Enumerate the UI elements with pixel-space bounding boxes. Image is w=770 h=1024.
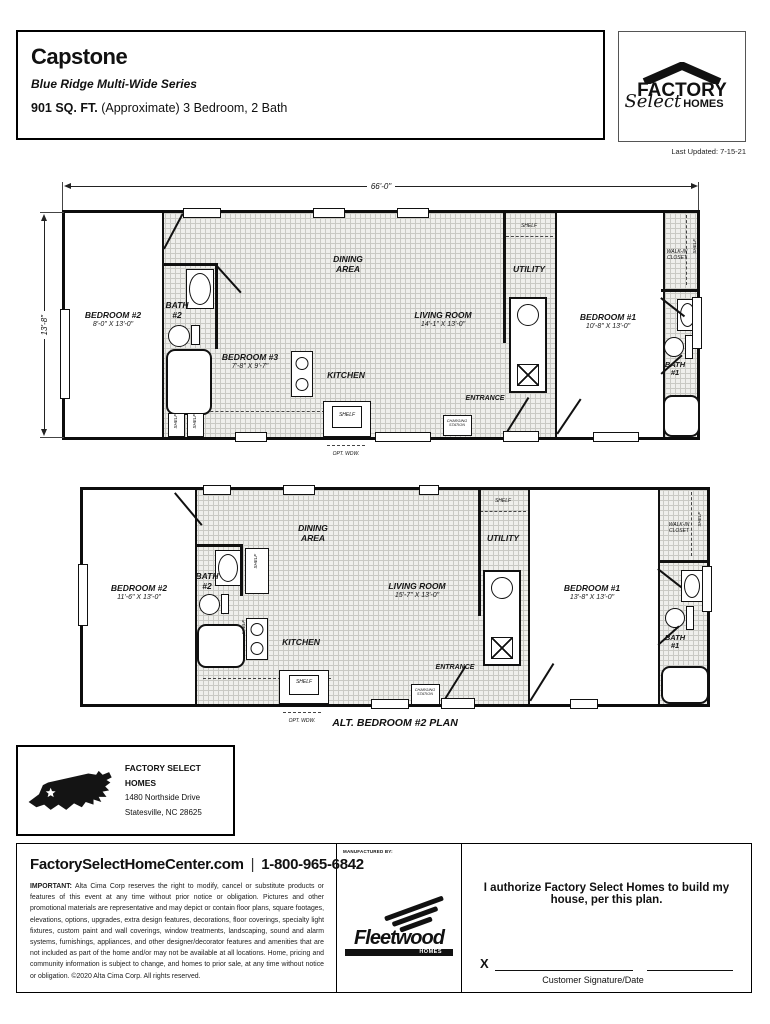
window (397, 208, 429, 218)
window (702, 566, 712, 612)
stove (246, 618, 268, 660)
bath1-label: BATH #1 (661, 361, 689, 378)
bathtub (663, 395, 700, 437)
shelf-label-vertical: SHELF (173, 414, 178, 429)
window (419, 485, 439, 495)
shelf-label-vertical: SHELF (697, 512, 702, 527)
sqft-value: 901 SQ. FT. (31, 101, 98, 115)
last-updated: Last Updated: 7-15-21 (520, 147, 746, 156)
utility-label: UTILITY (487, 534, 519, 544)
contact-column: FactorySelectHomeCenter.com|1-800-965-68… (17, 844, 337, 992)
window (593, 432, 639, 442)
living-label: LIVING ROOM 14'-1" X 13'-0" (414, 311, 471, 328)
signature-column: I authorize Factory Select Homes to buil… (462, 844, 751, 992)
dim-extension (62, 182, 63, 210)
living-label: LIVING ROOM 15'-7" X 13'-0" (388, 582, 445, 599)
door-swing (658, 568, 683, 588)
door-swing (504, 397, 529, 435)
kitchen-label: KITCHEN (327, 371, 365, 381)
walkin-label: WALK-IN CLOSET (662, 522, 696, 534)
shelf-label: SHELF (339, 412, 355, 418)
arrow-up-icon (41, 214, 47, 221)
kitchen-island: SHELF (279, 670, 329, 704)
opt-window-label: OPT. WDW. (289, 718, 316, 724)
page-title: Capstone (31, 44, 603, 70)
opt-window-label: OPT. WDW. (333, 451, 360, 457)
washer-dryer (483, 570, 521, 666)
charging-station: CHARGING STATION (443, 415, 472, 436)
walkin-label: WALK-IN CLOSET (660, 249, 694, 261)
bedroom3-label: BEDROOM #3 7'-8" X 9'-7" (222, 353, 278, 370)
washer (517, 304, 539, 326)
bedroom2-label: BEDROOM #2 8'-0" X 13'-0" (85, 311, 141, 328)
entrance-label: ENTRANCE (436, 664, 475, 672)
dining-label: DINING AREA (326, 255, 370, 274)
toilet-tank (191, 325, 200, 345)
manufacturer-column: MANUFACTURED BY: Fleetwood HOMES (337, 844, 462, 992)
bath2-label: BATH #2 (161, 301, 193, 320)
fleetwood-bar: HOMES (345, 949, 453, 956)
wall (661, 289, 697, 292)
bedroom1-label: BEDROOM #1 10'-8" X 13'-0" (580, 313, 636, 330)
toilet (168, 325, 190, 347)
opt-window-dash (283, 712, 321, 713)
manufactured-by-label: MANUFACTURED BY: (343, 849, 455, 854)
stove (291, 351, 313, 397)
door-swing (164, 213, 184, 249)
toilet-tank (686, 606, 694, 630)
window (371, 699, 409, 709)
logo-homes-text: HOMES (683, 98, 723, 110)
arrow-left-icon (64, 183, 71, 189)
shelf-label-vertical: SHELF (253, 554, 258, 569)
entrance-opening (503, 431, 539, 442)
floor-plan-main: BEDROOM #2 8'-0" X 13'-0" BATH #2 BEDROO… (62, 210, 700, 440)
swoosh-icon (345, 904, 453, 930)
shelf-label: SHELF (296, 679, 312, 685)
wall (503, 213, 506, 343)
alt-plan-caption: ALT. BEDROOM #2 PLAN (80, 717, 710, 729)
disclaimer-text: Alta Cima Corp reserves the right to mod… (30, 883, 324, 980)
dealer-address2: Statesville, NC 28625 (125, 806, 233, 820)
dim-extension (698, 182, 699, 210)
wall (215, 263, 218, 349)
arrow-down-icon (41, 429, 47, 436)
dealer-info: FACTORY SELECT HOMES 1480 Northside Driv… (125, 761, 233, 820)
bath1-label: BATH #1 (661, 634, 689, 651)
logo-select-text: Select (624, 93, 681, 111)
width-dim-label: 66'-0" (367, 182, 395, 191)
wall (658, 560, 707, 563)
x-label: X (480, 956, 489, 971)
bath2-label: BATH #2 (191, 572, 223, 591)
floor-plan-alt: BEDROOM #2 11'-6" X 13'-0" BATH #2 DININ… (80, 487, 710, 707)
kitchen-label: KITCHEN (282, 638, 320, 648)
arrow-right-icon (691, 183, 698, 189)
toilet (665, 608, 685, 628)
shelf-label-vertical: SHELF (241, 620, 246, 635)
bedroom1-label: BEDROOM #1 13'-8" X 13'-0" (564, 584, 620, 601)
charging-station: CHARGING STATION (411, 684, 440, 705)
dim-extension (40, 212, 64, 213)
dealer-address1: 1480 Northside Drive (125, 791, 233, 805)
window (375, 432, 431, 442)
toilet-tank (221, 594, 229, 614)
series-subtitle: Blue Ridge Multi-Wide Series (31, 77, 603, 91)
bathtub (661, 666, 709, 704)
bathtub (197, 624, 245, 668)
dealer-name: FACTORY SELECT HOMES (125, 761, 233, 792)
factory-select-logo: FACTORY Select HOMES (618, 31, 746, 142)
shelf-label-vertical: SHELF (192, 414, 197, 429)
important-label: IMPORTANT: (30, 883, 72, 890)
door-swing (216, 265, 241, 293)
dryer (517, 364, 539, 386)
entrance-opening (441, 698, 475, 709)
signature-row: X (480, 956, 733, 971)
height-dim-label: 13'-8" (40, 311, 49, 339)
window (78, 564, 88, 626)
wall (478, 490, 481, 616)
utility-label: UTILITY (513, 265, 545, 275)
footer-strip: FactorySelectHomeCenter.com|1-800-965-68… (16, 843, 752, 993)
fleetwood-logo: Fleetwood HOMES (345, 904, 453, 956)
wall (195, 544, 243, 547)
wall (162, 263, 218, 266)
window (235, 432, 267, 442)
door-opening (183, 208, 221, 218)
dining-label: DINING AREA (291, 524, 335, 543)
dim-extension (40, 437, 64, 438)
date-line (647, 958, 733, 971)
window (570, 699, 598, 709)
shelf-dash (506, 236, 553, 237)
website-text: FactorySelectHomeCenter.com (30, 856, 244, 873)
washer (491, 577, 513, 599)
logo-row: Select HOMES (624, 93, 723, 111)
window (203, 485, 231, 495)
shelf-label-vertical: SHELF (692, 239, 697, 254)
fleetwood-homes-text: HOMES (419, 949, 442, 955)
authorization-text: I authorize Factory Select Homes to buil… (480, 882, 733, 906)
bedroom2-label: BEDROOM #2 11'-6" X 13'-0" (111, 584, 167, 601)
sqft-line: 901 SQ. FT. (Approximate) 3 Bedroom, 2 B… (31, 101, 603, 115)
disclaimer: IMPORTANT: Alta Cima Corp reserves the r… (30, 881, 324, 982)
floor-plan-sheet: Capstone Blue Ridge Multi-Wide Series 90… (0, 0, 770, 1024)
header: Capstone Blue Ridge Multi-Wide Series 90… (16, 30, 605, 140)
north-carolina-map-icon (26, 765, 117, 817)
washer-dryer (509, 297, 547, 393)
window (692, 297, 702, 349)
width-dimension: 66'-0" (64, 181, 698, 191)
shelf-label: SHELF (521, 223, 537, 229)
height-dimension: 13'-8" (38, 214, 50, 436)
kitchen-island: SHELF (323, 401, 371, 437)
opt-window-dash (327, 445, 365, 446)
sqft-detail: (Approximate) 3 Bedroom, 2 Bath (101, 101, 287, 115)
signature-line (495, 958, 633, 971)
entrance-label: ENTRANCE (466, 395, 505, 403)
dealer-box: FACTORY SELECT HOMES 1480 Northside Driv… (16, 745, 235, 836)
signature-caption: Customer Signature/Date (508, 975, 678, 985)
shelf-label: SHELF (495, 498, 511, 504)
shelf-dash (480, 511, 526, 512)
window (283, 485, 315, 495)
dryer (491, 637, 513, 659)
bathtub (166, 349, 212, 415)
window (313, 208, 345, 218)
fleetwood-text: Fleetwood (345, 928, 453, 948)
separator: | (244, 856, 262, 873)
toilet (199, 594, 220, 615)
window (60, 309, 70, 399)
sink (681, 570, 703, 602)
contact-row: FactorySelectHomeCenter.com|1-800-965-68… (30, 856, 324, 873)
